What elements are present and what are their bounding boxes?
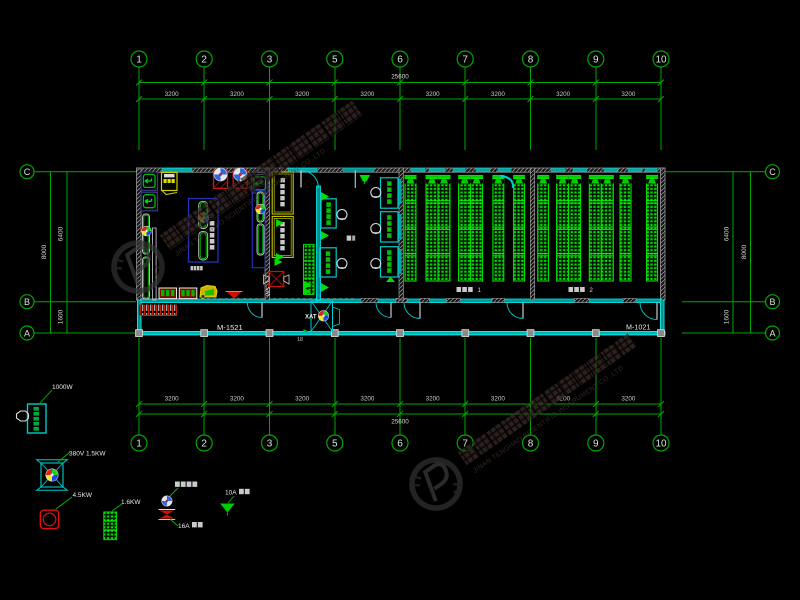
svg-text:9: 9 [593, 439, 599, 450]
svg-text:6400: 6400 [724, 226, 731, 241]
svg-text:6400: 6400 [58, 226, 65, 241]
svg-text:3200: 3200 [295, 91, 310, 98]
svg-text:B: B [769, 297, 775, 307]
svg-text:1600: 1600 [724, 309, 731, 324]
svg-text:3: 3 [267, 439, 273, 450]
svg-text:6: 6 [397, 55, 403, 66]
svg-text:2: 2 [201, 439, 207, 450]
svg-text:3200: 3200 [230, 396, 245, 403]
svg-text:10: 10 [655, 439, 667, 450]
svg-text:1: 1 [136, 439, 142, 450]
svg-text:8000: 8000 [41, 244, 48, 259]
svg-text:8: 8 [528, 55, 534, 66]
svg-text:3200: 3200 [165, 91, 180, 98]
svg-text:3200: 3200 [426, 91, 441, 98]
svg-text:A: A [769, 328, 775, 338]
svg-text:3200: 3200 [165, 396, 180, 403]
svg-text:3200: 3200 [621, 91, 636, 98]
svg-text:C: C [769, 167, 776, 177]
svg-text:XAT: XAT [305, 315, 317, 321]
svg-text:3: 3 [267, 55, 273, 66]
svg-text:3200: 3200 [621, 396, 636, 403]
svg-text:10A: 10A [225, 490, 237, 497]
svg-text:10: 10 [655, 55, 667, 66]
svg-text:A: A [24, 328, 30, 338]
svg-text:3200: 3200 [556, 91, 571, 98]
svg-text:3200: 3200 [360, 396, 375, 403]
svg-text:3200: 3200 [491, 91, 506, 98]
svg-text:380V 1.5KW: 380V 1.5KW [69, 451, 106, 458]
svg-text:B: B [24, 297, 30, 307]
svg-text:M-1521: M-1521 [217, 323, 243, 332]
svg-text:C: C [24, 167, 31, 177]
svg-text:1000W: 1000W [52, 384, 73, 391]
svg-text:8: 8 [528, 439, 534, 450]
svg-text:3200: 3200 [426, 396, 441, 403]
svg-text:9: 9 [593, 55, 599, 66]
svg-text:25600: 25600 [391, 74, 409, 81]
svg-text:16A: 16A [178, 523, 190, 530]
svg-text:3200: 3200 [491, 396, 506, 403]
svg-text:7: 7 [462, 55, 468, 66]
svg-text:3200: 3200 [360, 91, 375, 98]
svg-text:3200: 3200 [295, 396, 310, 403]
svg-text:18: 18 [297, 337, 303, 343]
svg-text:1: 1 [136, 55, 142, 66]
svg-text:M-1021: M-1021 [626, 323, 650, 332]
svg-text:1.6KW: 1.6KW [121, 499, 141, 506]
svg-text:8000: 8000 [741, 244, 748, 259]
svg-text:4.5KW: 4.5KW [73, 492, 93, 499]
svg-text:1600: 1600 [58, 309, 65, 324]
svg-text:25600: 25600 [391, 419, 409, 426]
svg-text:6: 6 [397, 439, 403, 450]
svg-text:WS: WS [266, 287, 272, 296]
svg-text:5: 5 [332, 439, 338, 450]
svg-text:2: 2 [201, 55, 207, 66]
svg-text:5: 5 [332, 55, 338, 66]
svg-text:3200: 3200 [230, 91, 245, 98]
